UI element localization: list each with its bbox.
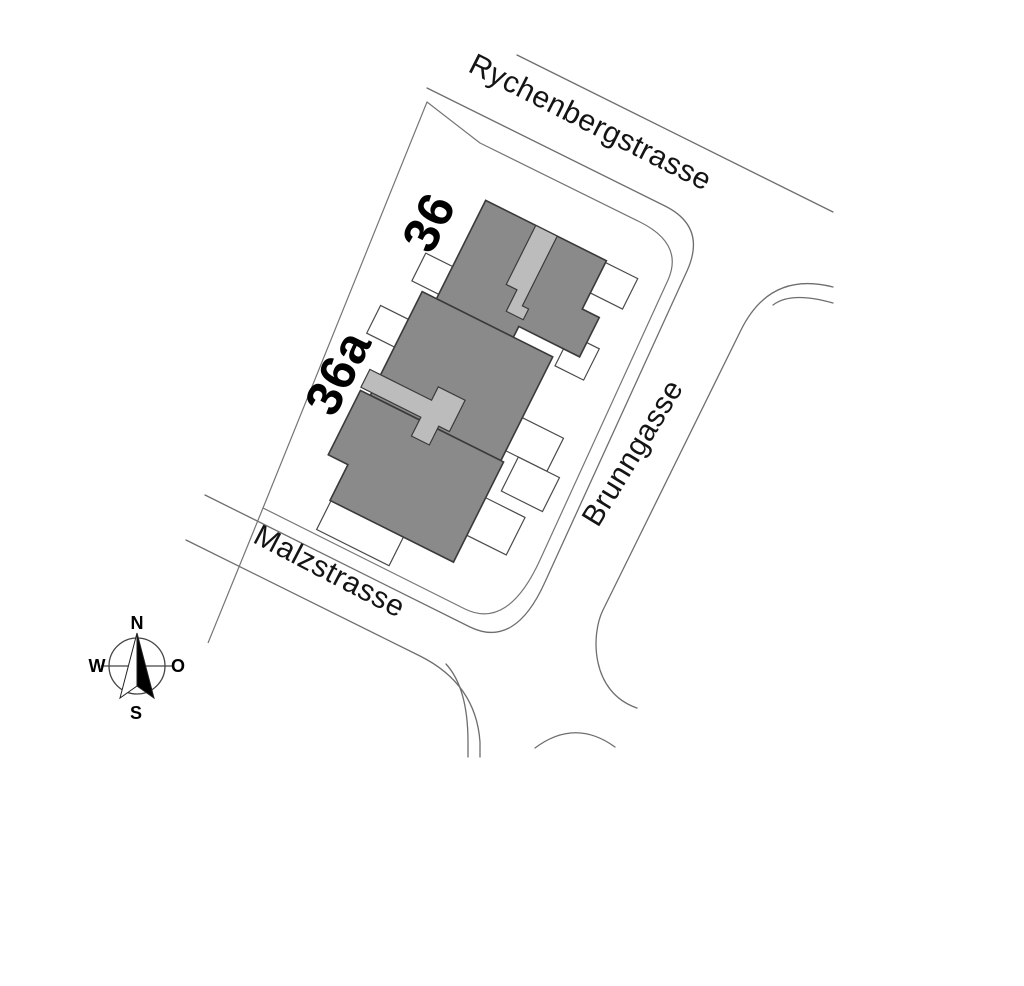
compass-label-west: W xyxy=(89,656,106,676)
street-edge-rychenbergstrasse-far xyxy=(517,55,833,212)
compass-label-north: N xyxy=(131,613,144,633)
compass-label-south: S xyxy=(130,703,142,723)
property-line-west-extension xyxy=(208,508,263,643)
street-corner-arc-south xyxy=(535,733,615,748)
site-plan: 36 36a Rychenbergstrasse Brunngasse Malz… xyxy=(0,0,1024,986)
compass-rose: N S W O xyxy=(89,613,186,723)
annex-east-3 xyxy=(501,457,559,512)
compass-label-east: O xyxy=(171,656,185,676)
street-edge-brunngasse-east xyxy=(596,284,833,708)
building-label-36: 36 xyxy=(391,184,467,261)
street-label-rychenbergstrasse: Rychenbergstrasse xyxy=(464,48,717,198)
site-plan-canvas: 36 36a Rychenbergstrasse Brunngasse Malz… xyxy=(0,0,1024,986)
street-edge-south-lane xyxy=(446,664,468,757)
street-edge-northeast-spur xyxy=(773,297,833,305)
street-label-brunngasse: Brunngasse xyxy=(576,374,690,532)
